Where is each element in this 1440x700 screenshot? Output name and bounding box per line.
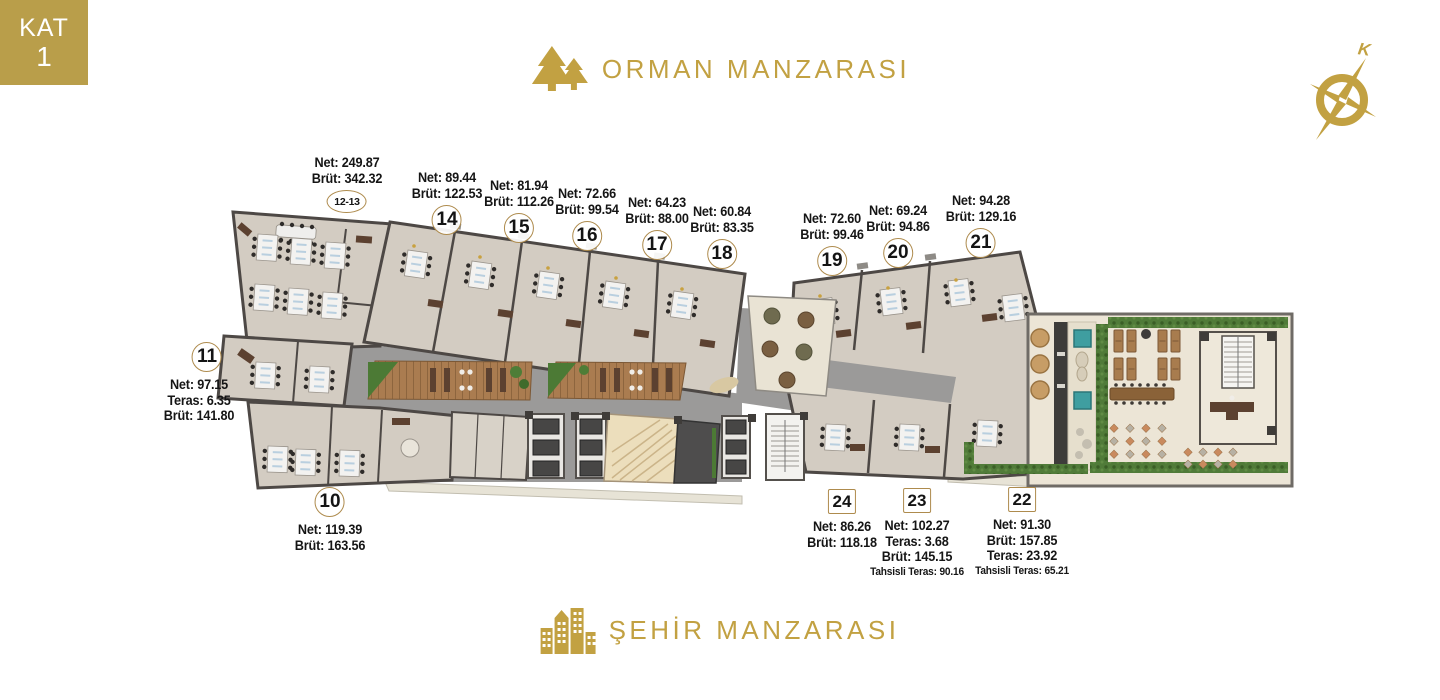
floor-badge-number: 1 [36, 43, 52, 71]
unit-badge-14[interactable]: 14 [432, 205, 462, 235]
unit-badge-20[interactable]: 20 [883, 238, 913, 268]
city-view-label: ŞEHİR MANZARASI [609, 615, 900, 646]
unit-label-10: 10 Net: 119.39 Brüt: 163.56 [293, 487, 368, 553]
unit-badge-22[interactable]: 22 [1008, 487, 1036, 512]
unit-label-23: 23 Net: 102.27 Teras: 3.68 Brüt: 145.15 … [867, 488, 967, 579]
wood-deck-west [368, 361, 532, 400]
pine-trees-icon [530, 46, 590, 92]
floorplan-page: KAT 1 ORMAN MANZARASI [0, 0, 1440, 700]
compass-icon [1300, 38, 1390, 143]
service-cores [450, 411, 808, 483]
unit-10-block [248, 402, 458, 488]
unit-label-12-13: Net: 249.87Brüt: 342.32 12-13 [310, 155, 385, 213]
unit-label-17: Net: 64.23Brüt: 88.00 17 [623, 195, 691, 260]
compass: K [1300, 38, 1390, 143]
floor-badge-label: KAT [19, 15, 69, 41]
patio-courtyard [748, 296, 836, 396]
wood-deck-east [548, 362, 686, 400]
unit-badge-15[interactable]: 15 [504, 213, 534, 243]
unit-badge-19[interactable]: 19 [817, 246, 847, 276]
forest-view-label: ORMAN MANZARASI [602, 54, 910, 85]
unit-label-15: Net: 81.94Brüt: 112.26 15 [482, 178, 556, 243]
unit-badge-17[interactable]: 17 [642, 230, 672, 260]
unit-badge-10[interactable]: 10 [315, 487, 345, 517]
unit-badge-16[interactable]: 16 [572, 221, 602, 251]
unit-label-21: Net: 94.28Brüt: 129.16 21 [944, 193, 1019, 258]
unit-badge-23[interactable]: 23 [903, 488, 931, 513]
unit-badge-12-13[interactable]: 12-13 [327, 190, 367, 213]
forest-view-title: ORMAN MANZARASI [530, 46, 910, 92]
unit-label-22: 22 Net: 91.30 Brüt: 157.85 Teras: 23.92 … [972, 487, 1072, 578]
unit-11-block [218, 336, 352, 406]
floor-badge[interactable]: KAT 1 [0, 0, 88, 85]
unit-badge-24[interactable]: 24 [828, 489, 856, 514]
unit-badge-21[interactable]: 21 [966, 228, 996, 258]
unit-label-18: Net: 60.84Brüt: 83.35 18 [688, 204, 756, 269]
unit-badge-18[interactable]: 18 [707, 239, 737, 269]
unit-badge-11[interactable]: 11 [192, 342, 222, 372]
unit-label-19: Net: 72.60Brüt: 99.46 19 [798, 211, 866, 276]
unit-label-20: Net: 69.24Brüt: 94.86 20 [864, 203, 932, 268]
unit-label-14: Net: 89.44Brüt: 122.53 14 [410, 170, 485, 235]
city-view-title: ŞEHİR MANZARASI [541, 606, 900, 654]
unit-label-16: Net: 72.66Brüt: 99.54 16 [553, 186, 621, 251]
unit-label-11: 11 Net: 97.15 Teras: 6.35 Brüt: 141.80 [162, 342, 237, 424]
city-buildings-icon [541, 606, 597, 654]
